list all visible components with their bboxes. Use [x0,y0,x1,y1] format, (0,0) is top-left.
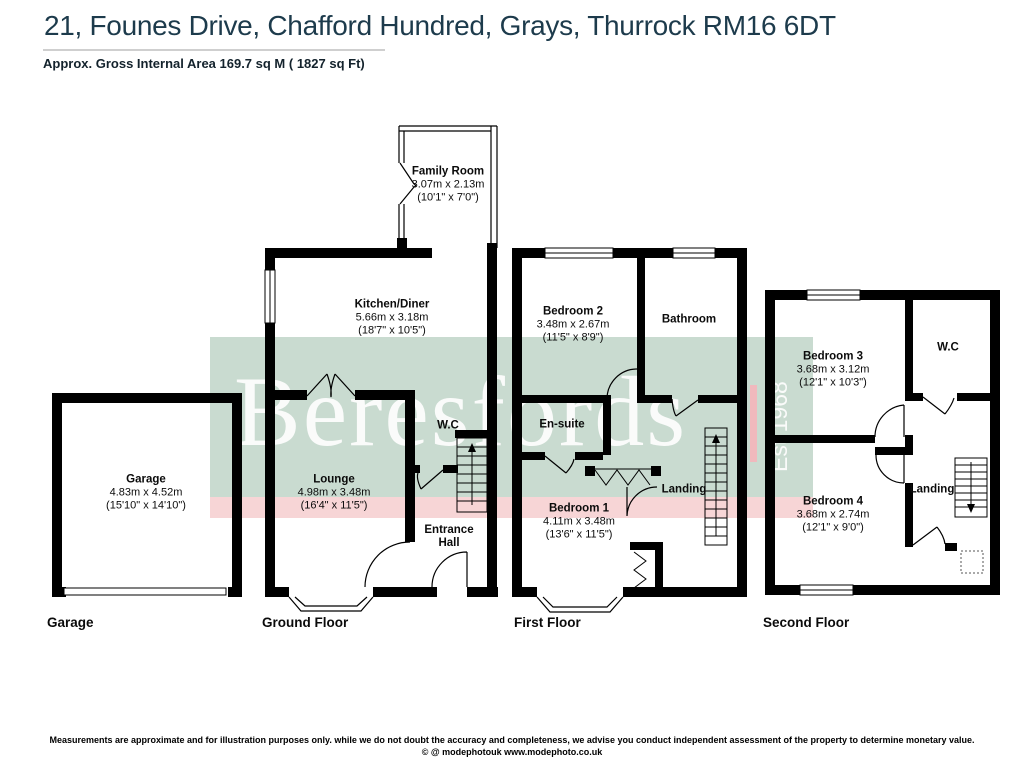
loft-hatch [961,551,983,573]
cupboard-doors [634,552,646,588]
floor-caption-second: Second Floor [763,615,849,630]
room-label-lounge: Lounge 4.98m x 3.48m (16'4" x 11'5") [298,474,371,513]
kitchen-double-doors [307,374,355,397]
room-label-bedroom2: Bedroom 2 3.48m x 2.67m (11'5" x 8'9") [537,306,610,345]
room-label-bedroom3: Bedroom 3 3.68m x 3.12m (12'1" x 10'3") [797,351,870,390]
bathroom-door [672,399,698,416]
floorplan-drawing [0,0,1024,764]
room-label-ensuite: En-suite [539,419,584,432]
room-label-kitchen-diner: Kitchen/Diner 5.66m x 3.18m (18'7" x 10'… [355,299,430,338]
room-label-landing-second: Landing [910,484,955,497]
room-label-garage: Garage 4.83m x 4.52m (15'10" x 14'10") [106,474,186,513]
wardrobe [585,466,661,485]
room-label-bedroom1: Bedroom 1 4.11m x 3.48m (13'6" x 11'5") [543,503,615,542]
ensuite-door [545,456,574,473]
bay-window [289,597,373,611]
floor-caption-garage: Garage [47,615,94,630]
stairs-ground [457,438,487,512]
room-label-family-room: Family Room 3.07m x 2.13m (10'1" x 7'0") [412,166,485,205]
stairs-down-arrow [967,504,975,513]
floor-caption-ground: Ground Floor [262,615,348,630]
stairs-second [955,458,987,517]
bedroom2-door [607,369,637,399]
bedroom4-door [876,455,904,483]
wc-door-second [923,397,954,414]
stairs-up-arrow [712,434,720,443]
bedroom1-door [627,487,657,516]
garage-door [64,588,226,595]
second-floor-plan [765,290,1000,595]
room-label-landing-first: Landing [662,484,707,497]
footer-credit: © @ modephotouk www.modephoto.co.uk [0,747,1024,757]
room-label-bedroom4: Bedroom 4 3.68m x 2.74m (12'1" x 9'0") [797,496,870,535]
wc-door [417,470,443,489]
room-label-wc-second: W.C [937,342,959,355]
bay-window [537,597,623,612]
footer-disclaimer: Measurements are approximate and for ill… [0,735,1024,745]
floorplan-page: 21, Founes Drive, Chafford Hundred, Gray… [0,0,1024,764]
lounge-door-arc [365,542,410,587]
room-label-bathroom: Bathroom [662,314,716,327]
bedroom3-door [875,405,904,437]
room-label-wc-ground: W.C [437,420,459,433]
stairs-first [705,428,727,545]
front-door [432,552,467,587]
floor-caption-first: First Floor [514,615,581,630]
landing-nook-door [913,527,945,545]
room-label-entrance-hall: Entrance Hall [416,524,482,550]
